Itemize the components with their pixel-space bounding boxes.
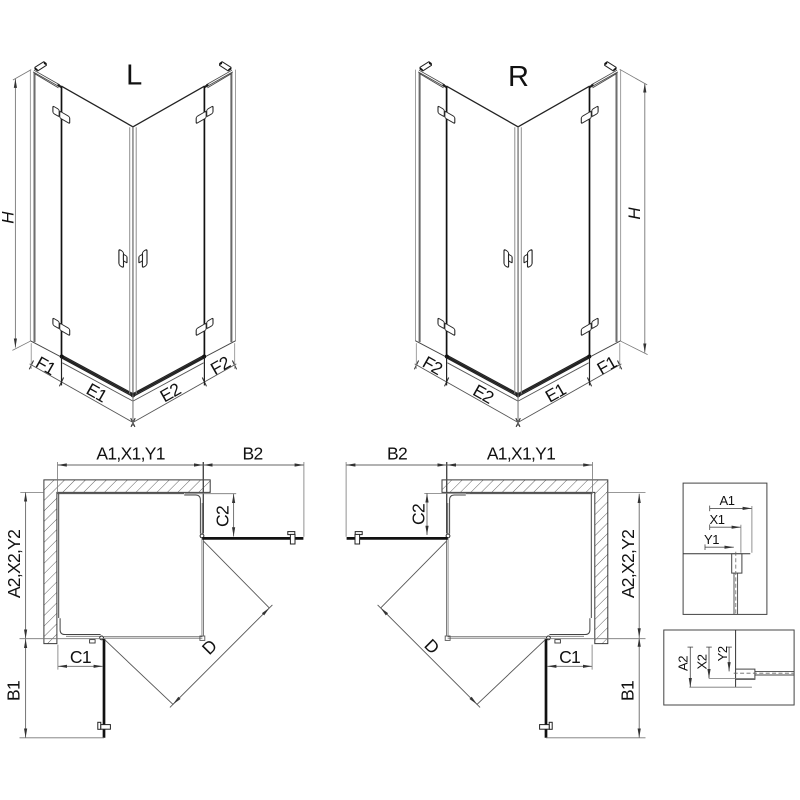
svg-text:D: D bbox=[420, 635, 443, 658]
svg-text:H: H bbox=[625, 207, 644, 220]
svg-text:E1: E1 bbox=[542, 379, 569, 406]
svg-text:B1: B1 bbox=[617, 681, 637, 701]
svg-text:C1: C1 bbox=[70, 647, 91, 667]
svg-text:B1: B1 bbox=[3, 681, 23, 701]
svg-text:X1: X1 bbox=[709, 512, 724, 527]
svg-text:F1: F1 bbox=[32, 352, 58, 379]
svg-text:R: R bbox=[508, 61, 529, 93]
svg-text:C2: C2 bbox=[213, 506, 233, 527]
svg-text:F2: F2 bbox=[419, 352, 445, 379]
svg-text:E2: E2 bbox=[157, 379, 184, 406]
svg-text:B2: B2 bbox=[387, 444, 407, 464]
svg-text:A2,X2,Y2: A2,X2,Y2 bbox=[4, 530, 24, 598]
svg-text:L: L bbox=[126, 60, 142, 92]
svg-text:A1: A1 bbox=[719, 493, 734, 508]
svg-text:Y1: Y1 bbox=[704, 532, 719, 547]
svg-text:H: H bbox=[0, 211, 17, 224]
svg-text:C2: C2 bbox=[409, 504, 429, 525]
svg-text:A2: A2 bbox=[676, 656, 691, 671]
svg-text:E1: E1 bbox=[83, 379, 110, 406]
svg-text:C1: C1 bbox=[559, 647, 580, 667]
svg-text:A1,X1,Y1: A1,X1,Y1 bbox=[487, 444, 555, 464]
svg-text:F1: F1 bbox=[593, 352, 619, 379]
svg-text:A2,X2,Y2: A2,X2,Y2 bbox=[618, 530, 638, 598]
svg-text:Y2: Y2 bbox=[715, 646, 730, 661]
svg-text:A1,X1,Y1: A1,X1,Y1 bbox=[96, 444, 164, 464]
svg-text:D: D bbox=[198, 636, 221, 659]
svg-text:E2: E2 bbox=[470, 380, 497, 407]
svg-text:X2: X2 bbox=[694, 654, 709, 669]
svg-text:F2: F2 bbox=[207, 352, 233, 379]
svg-text:B2: B2 bbox=[242, 444, 262, 464]
